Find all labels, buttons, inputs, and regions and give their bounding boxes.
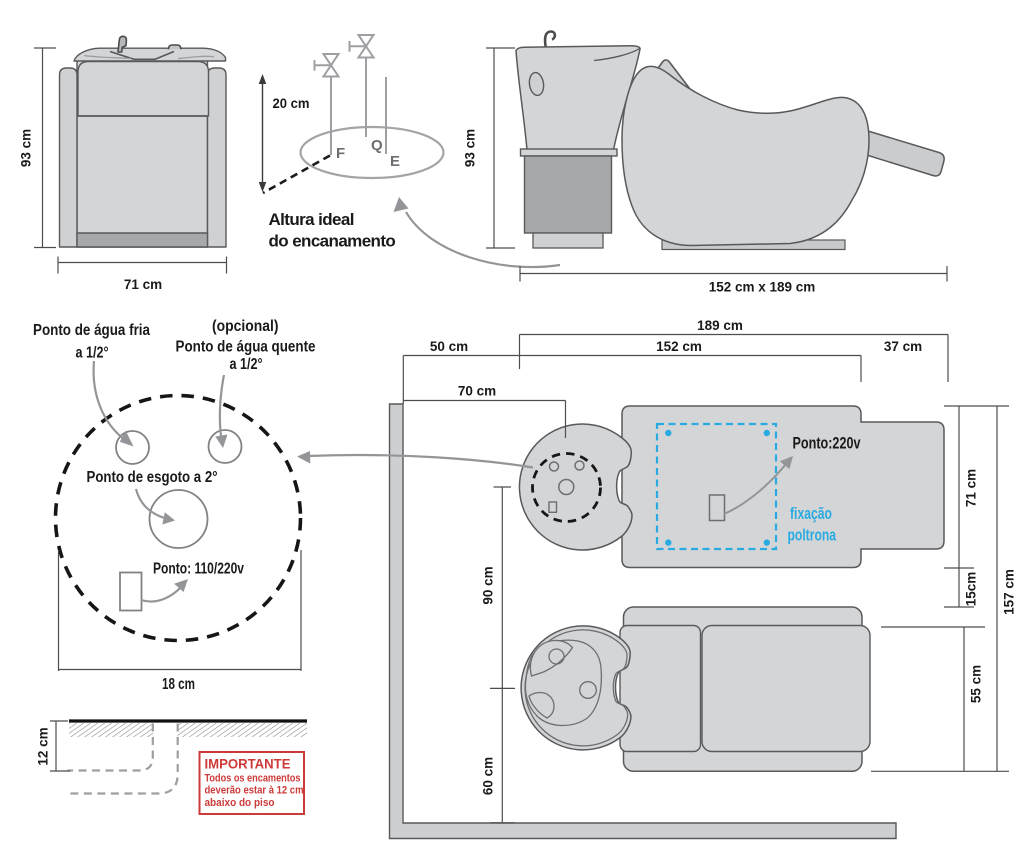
svg-text:Ponto:220v: Ponto:220v: [793, 435, 862, 453]
svg-text:152 cm x 189 cm: 152 cm x 189 cm: [709, 280, 816, 295]
svg-text:90 cm: 90 cm: [481, 566, 496, 604]
svg-text:71 cm: 71 cm: [964, 469, 979, 507]
svg-text:IMPORTANTE: IMPORTANTE: [205, 756, 291, 772]
svg-text:a 1/2°: a 1/2°: [76, 345, 109, 362]
svg-text:a 1/2°: a 1/2°: [230, 356, 263, 373]
svg-text:189 cm: 189 cm: [697, 318, 743, 333]
svg-text:71 cm: 71 cm: [124, 277, 162, 292]
svg-text:15cm: 15cm: [964, 572, 979, 607]
svg-text:Ponto: 110/220v: Ponto: 110/220v: [153, 561, 244, 578]
svg-text:(opcional): (opcional): [212, 318, 279, 335]
svg-text:152 cm: 152 cm: [656, 339, 702, 354]
svg-text:Altura ideal: Altura ideal: [269, 210, 354, 229]
svg-text:Ponto de água fria: Ponto de água fria: [33, 322, 150, 339]
svg-text:12 cm: 12 cm: [36, 727, 51, 765]
svg-text:abaixo do piso: abaixo do piso: [205, 797, 275, 809]
svg-text:Ponto de esgoto a 2°: Ponto de esgoto a 2°: [87, 469, 218, 486]
svg-text:do encanamento: do encanamento: [269, 232, 396, 251]
svg-text:50 cm: 50 cm: [430, 339, 468, 354]
svg-text:fixação: fixação: [790, 505, 832, 523]
svg-text:E: E: [390, 153, 400, 170]
svg-text:37 cm: 37 cm: [884, 339, 922, 354]
svg-text:20 cm: 20 cm: [273, 96, 310, 111]
svg-text:deverão estar à 12 cm: deverão estar à 12 cm: [205, 785, 304, 797]
svg-text:93 cm: 93 cm: [19, 129, 34, 167]
svg-text:Todos os encamentos: Todos os encamentos: [205, 773, 301, 785]
svg-text:poltrona: poltrona: [788, 527, 837, 545]
svg-text:18 cm: 18 cm: [162, 676, 195, 693]
svg-text:93 cm: 93 cm: [463, 129, 478, 167]
svg-text:70 cm: 70 cm: [458, 384, 496, 399]
svg-text:55 cm: 55 cm: [969, 665, 984, 703]
svg-text:157 cm: 157 cm: [1002, 569, 1017, 615]
svg-text:Q: Q: [371, 137, 383, 154]
svg-text:F: F: [336, 145, 345, 162]
svg-text:60 cm: 60 cm: [481, 757, 496, 795]
svg-text:Ponto de água quente: Ponto de água quente: [176, 339, 316, 356]
